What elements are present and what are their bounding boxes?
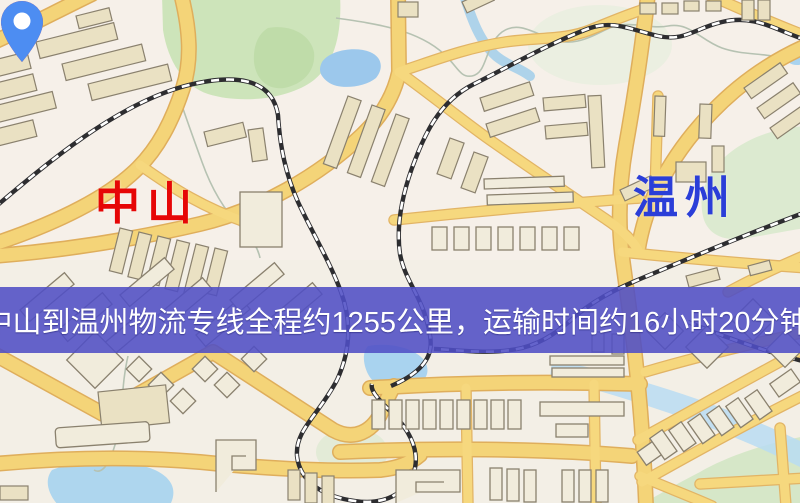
map-canvas [0,0,800,503]
origin-city-label: 中山 [95,181,199,226]
pin-hole [14,13,31,30]
map-screenshot: 中山 温州 中山到温州物流专线全程约1255公里，运输时间约16小时20分钟. [0,0,800,503]
route-info-banner: 中山到温州物流专线全程约1255公里，运输时间约16小时20分钟. [0,287,800,353]
destination-city-label: 温州 [633,175,737,220]
pin-shape [1,1,43,62]
route-info-text: 中山到温州物流专线全程约1255公里，运输时间约16小时20分钟. [0,299,800,341]
destination-marker-pin[interactable] [0,0,44,64]
